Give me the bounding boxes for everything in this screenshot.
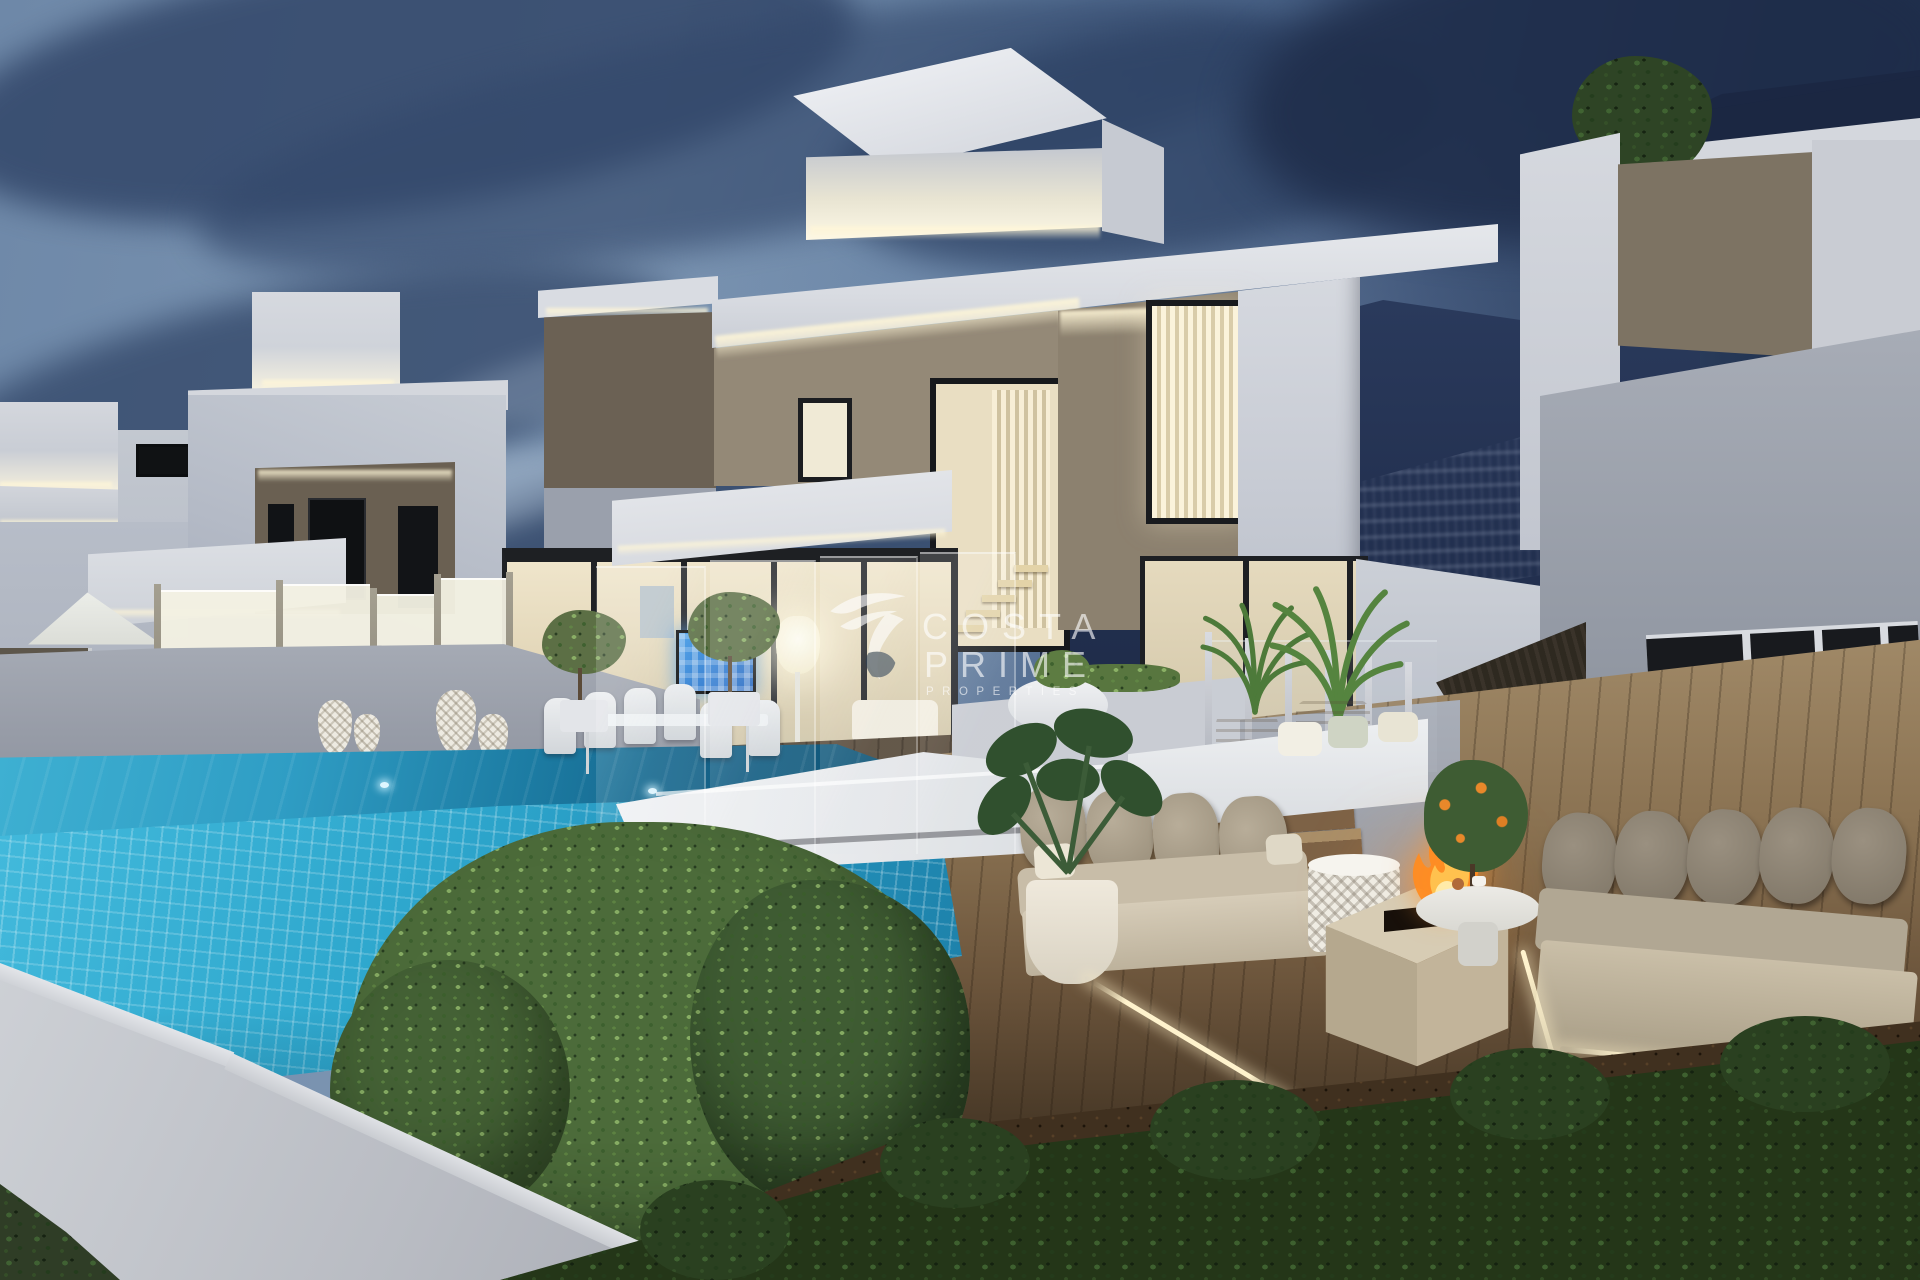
- watermark-text-costa: COSTA: [922, 606, 1108, 648]
- watermark-text-prime: PRIME: [924, 644, 1098, 686]
- watermark-text-properties: PROPERTIES: [926, 686, 1085, 698]
- watermark-logo: COSTA PRIME PROPERTIES: [822, 576, 1142, 716]
- hummingbird-logo-icon: [822, 584, 922, 696]
- villa-dusk-render: COSTA PRIME PROPERTIES: [0, 0, 1920, 1280]
